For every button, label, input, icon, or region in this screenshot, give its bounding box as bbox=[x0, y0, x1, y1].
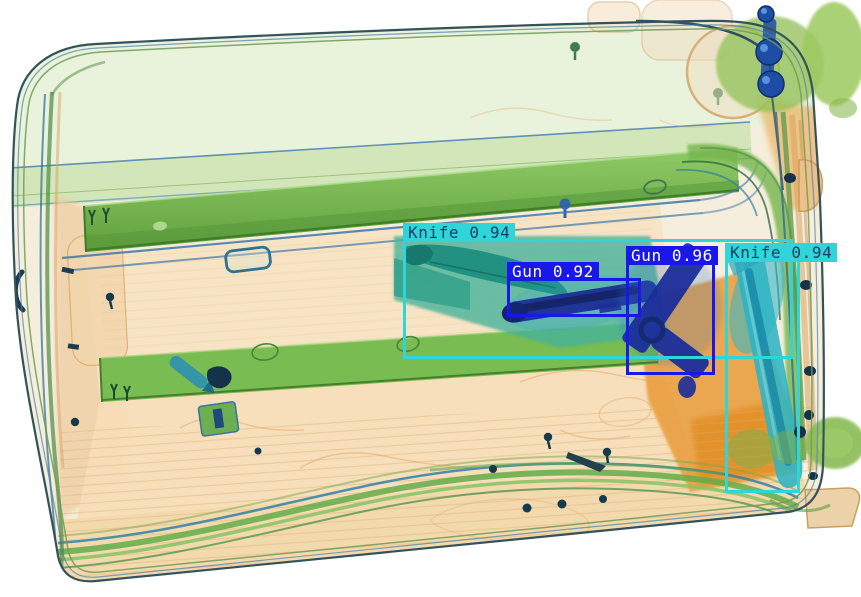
detection-label-knife-2: Knife 0.94 bbox=[725, 243, 837, 262]
detection-label-gun-1: Gun 0.92 bbox=[507, 262, 599, 281]
detection-label-gun-2: Gun 0.96 bbox=[626, 246, 718, 265]
detection-box-gun-1: Gun 0.92 bbox=[507, 278, 641, 317]
detection-box-knife-2: Knife 0.94 bbox=[725, 259, 800, 493]
detection-box-gun-2: Gun 0.96 bbox=[626, 262, 715, 375]
case-side-foot bbox=[805, 488, 860, 528]
inner-handle-outline bbox=[225, 246, 271, 272]
xray-scan-image: Knife 0.94 Gun 0.92 Gun 0.96 Knife 0.94 bbox=[0, 0, 861, 597]
green-tag bbox=[198, 402, 239, 437]
detection-label-knife-1: Knife 0.94 bbox=[403, 223, 515, 242]
